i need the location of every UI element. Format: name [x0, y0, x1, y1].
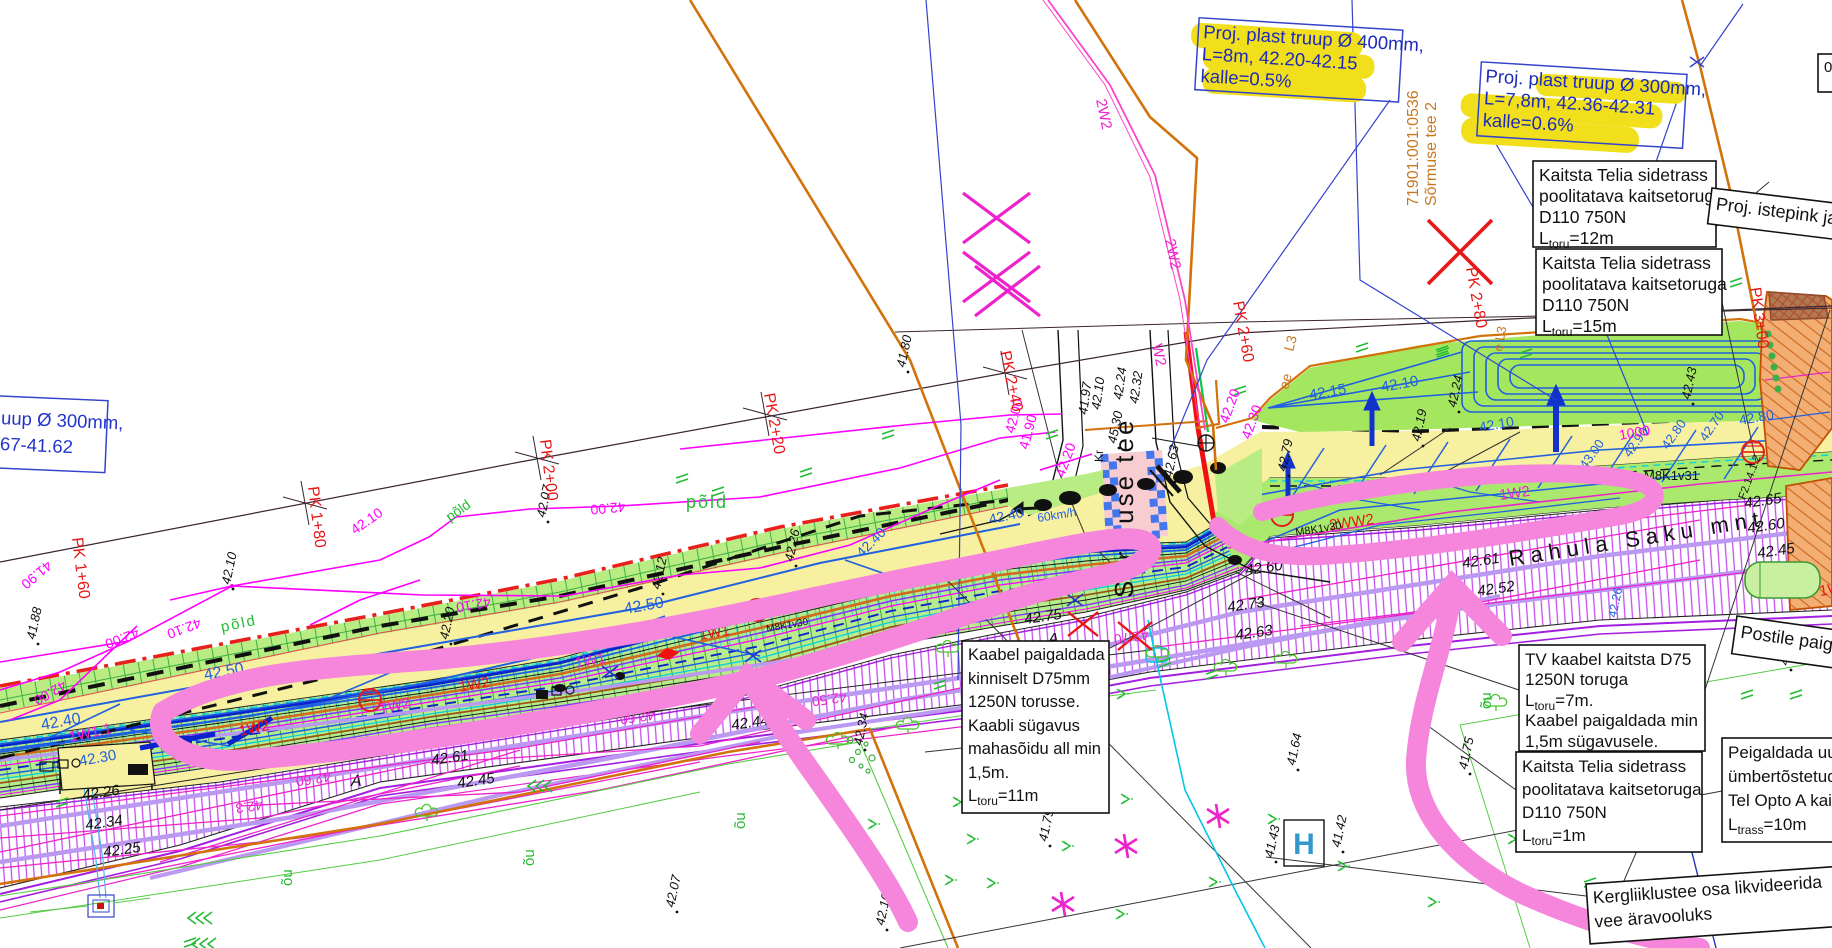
svg-text:Kaitsta Telia sidetrass: Kaitsta Telia sidetrass: [1542, 253, 1711, 273]
svg-text:D110 750N: D110 750N: [1539, 207, 1626, 227]
svg-text:42.00: 42.00: [590, 499, 627, 518]
svg-text:õu: õu: [732, 812, 749, 829]
svg-text:poolitatava kaitsetoruga: poolitatava kaitsetoruga: [1539, 186, 1724, 206]
svg-text:1250N torusse.: 1250N torusse.: [968, 693, 1080, 711]
svg-text:Kaabli sügavus: Kaabli sügavus: [968, 717, 1080, 735]
svg-text:mahasõidu all min: mahasõidu all min: [968, 740, 1101, 758]
svg-text:õu: õu: [279, 869, 296, 886]
svg-text:H: H: [1293, 828, 1315, 861]
svg-text:Kaabel paigaldada: Kaabel paigaldada: [968, 646, 1106, 664]
svg-text:Sõrmuse tee 2: Sõrmuse tee 2: [1423, 102, 1440, 206]
svg-text:ümbertõstetud: ümbertõstetud: [1728, 767, 1832, 786]
svg-text:Kaitsta Telia sidetrass: Kaitsta Telia sidetrass: [1539, 165, 1708, 185]
svg-text:D110 750N: D110 750N: [1522, 803, 1607, 822]
svg-text:Tel Opto A kait: Tel Opto A kait: [1728, 791, 1832, 810]
svg-text:71901:001:0536: 71901:001:0536: [1405, 90, 1422, 206]
svg-text:A: A: [350, 773, 362, 790]
svg-text:1,5m sügavusele.: 1,5m sügavusele.: [1525, 732, 1658, 751]
svg-text:Kaitsta Telia sidetrass: Kaitsta Telia sidetrass: [1522, 757, 1686, 776]
svg-text:67-41.62: 67-41.62: [0, 433, 73, 457]
svg-text:Kr: Kr: [1092, 450, 1106, 462]
svg-text:õu: õu: [521, 849, 538, 866]
svg-text:põld: põld: [686, 492, 728, 512]
svg-text:TV kaabel kaitsta D75: TV kaabel kaitsta D75: [1525, 650, 1691, 669]
svg-text:Peigaldada uus: Peigaldada uus: [1728, 743, 1832, 762]
svg-text:õu: õu: [1478, 692, 1495, 709]
svg-text:1,5m.: 1,5m.: [968, 764, 1009, 782]
svg-text:1250N toruga: 1250N toruga: [1525, 670, 1629, 689]
svg-text:1W: 1W: [1818, 580, 1832, 600]
svg-text:kinniselt D75mm: kinniselt D75mm: [968, 670, 1090, 688]
svg-text:D110 750N: D110 750N: [1542, 295, 1629, 315]
svg-text:poolitatava kaitsetoruga: poolitatava kaitsetoruga: [1522, 780, 1702, 799]
svg-text:poolitatava kaitsetoruga: poolitatava kaitsetoruga: [1542, 274, 1727, 294]
svg-text:0: 0: [1824, 59, 1832, 76]
svg-text:Kaabel paigaldada min: Kaabel paigaldada min: [1525, 711, 1698, 730]
